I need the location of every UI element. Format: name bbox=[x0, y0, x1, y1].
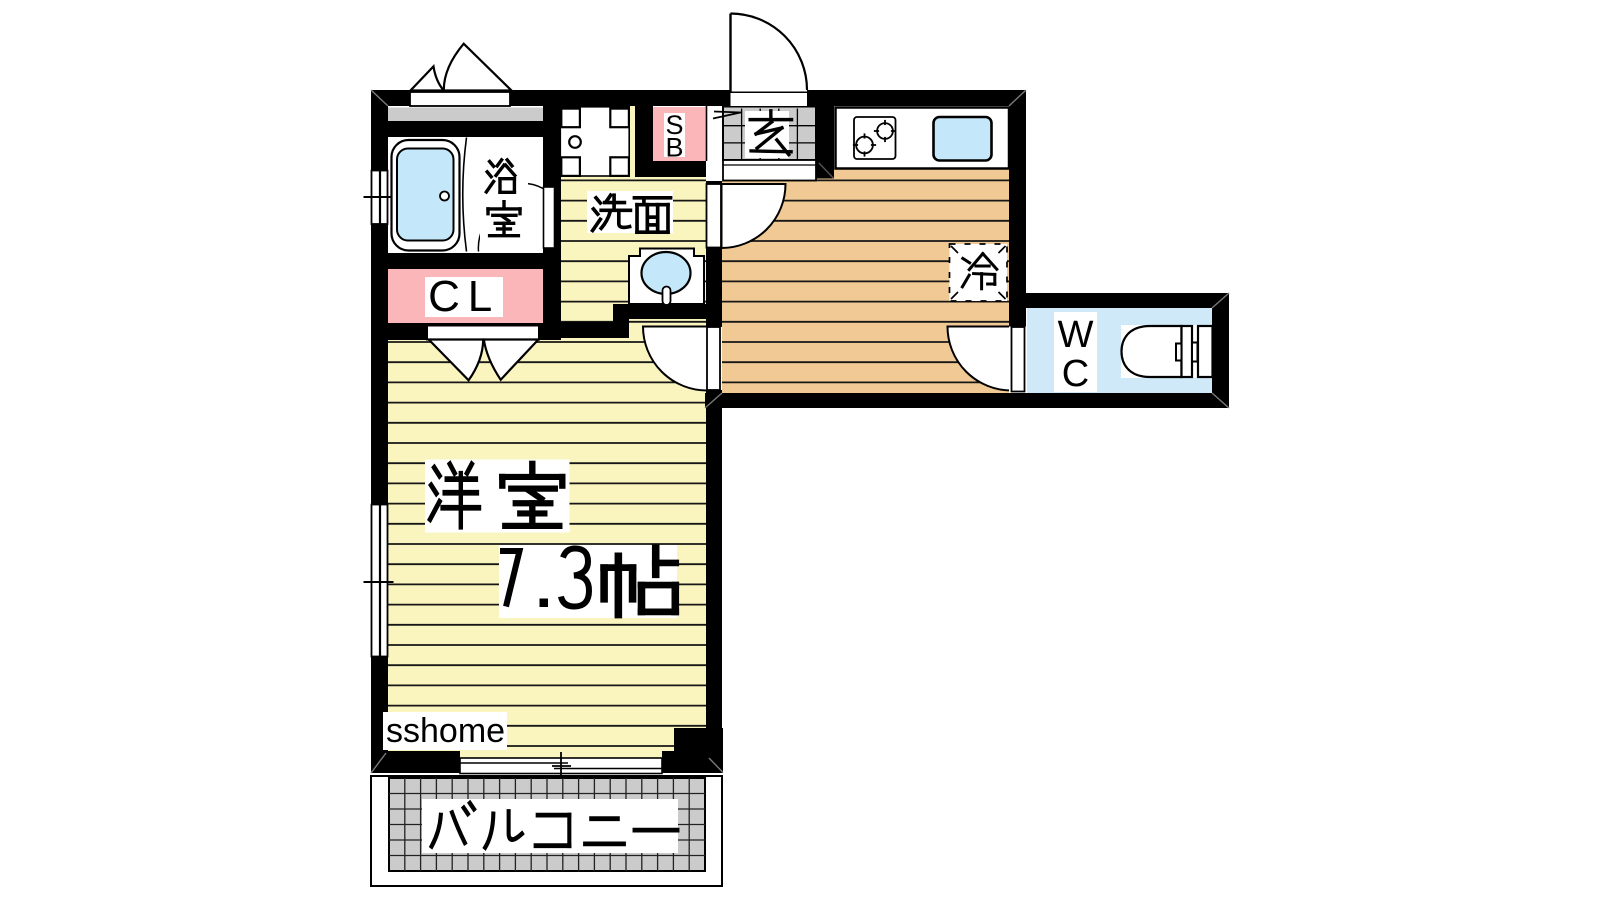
svg-text:C: C bbox=[428, 272, 460, 321]
svg-text:C: C bbox=[1062, 353, 1089, 395]
svg-text:sshome: sshome bbox=[386, 712, 505, 750]
svg-text:L: L bbox=[468, 272, 492, 321]
svg-text:W: W bbox=[1058, 314, 1094, 356]
svg-text:B: B bbox=[665, 133, 683, 163]
